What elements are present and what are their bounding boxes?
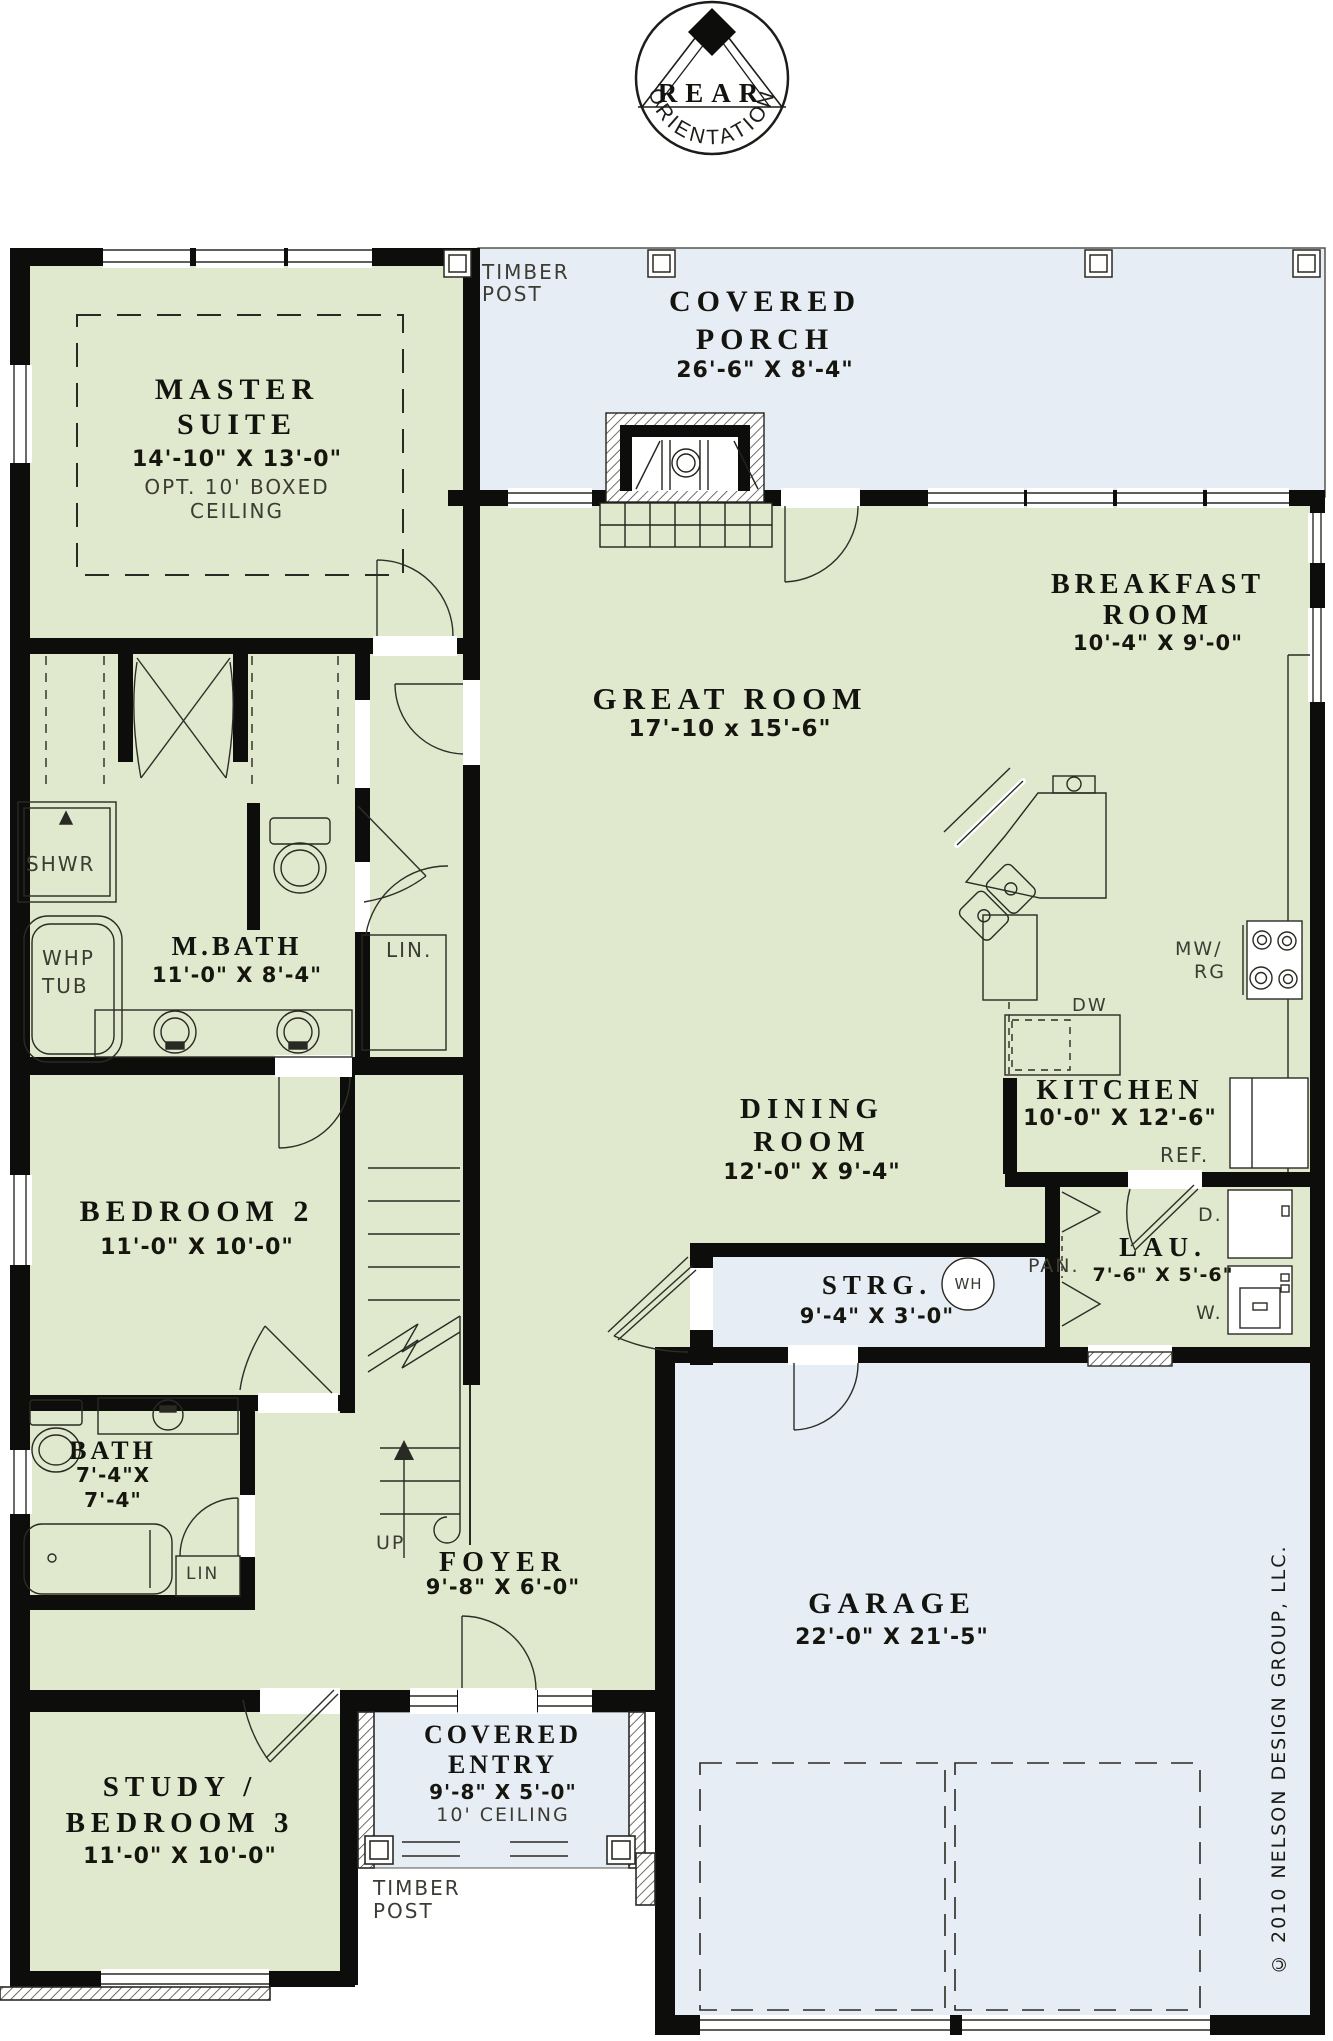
washer-label: W.: [1196, 1304, 1223, 1323]
timber-post-label-top-2: POST: [482, 284, 543, 304]
linen-bath-label: LIN: [186, 1566, 219, 1583]
room-dims-kitchen: 10'-0" X 12'-6": [970, 1108, 1270, 1130]
room-dims-covered-entry: 9'-8" X 5'-0": [353, 1782, 653, 1802]
water-heater-label: WH: [950, 1277, 987, 1292]
room-dims-garage: 22'-0" X 21'-5": [742, 1627, 1042, 1649]
shower-label: SHWR: [26, 854, 95, 874]
room-label-breakfast: BREAKFAST: [1008, 571, 1308, 599]
room-label-covered-porch-2: PORCH: [615, 325, 915, 355]
room-label-dining: DINING: [662, 1095, 962, 1124]
room-label-garage: GARAGE: [742, 1589, 1042, 1619]
room-label-bath: BATH: [23, 1438, 203, 1464]
room-dims-dining: 12'-0" X 9'-4": [662, 1162, 962, 1184]
master-ceiling-note-1: OPT. 10' BOXED: [87, 477, 387, 497]
timber-post-label-bottom-1: TIMBER: [373, 1878, 461, 1898]
room-label-great-room: GREAT ROOM: [580, 683, 880, 714]
room-dims-mbath: 11'-0" X 8'-4": [107, 965, 367, 986]
room-label-dining-2: ROOM: [662, 1128, 962, 1157]
room-dims-breakfast: 10'-4" X 9'-0": [1008, 633, 1308, 654]
microwave-range-label-2: RG: [1194, 963, 1226, 982]
room-dims-master-suite: 14'-10" X 13'-0": [87, 449, 387, 471]
room-label-study: STUDY /: [30, 1773, 330, 1802]
linen-mbath-label: LIN.: [386, 940, 432, 960]
room-dims-laundry: 7'-6" X 5'-6": [1063, 1266, 1263, 1285]
entry-ceiling-note: 10' CEILING: [353, 1806, 653, 1825]
room-dims-great-room: 17'-10 x 15'-6": [580, 718, 880, 741]
room-label-bedroom2: BEDROOM 2: [47, 1197, 347, 1227]
fireplace: [600, 413, 772, 547]
room-label-laundry: LAU.: [1063, 1234, 1263, 1261]
room-label-master-suite: MASTER: [87, 375, 387, 405]
refrigerator-label: REF.: [1160, 1145, 1209, 1165]
room-label-master-suite-2: SUITE: [87, 410, 387, 440]
room-label-covered-entry: COVERED: [353, 1722, 653, 1748]
whirlpool-label-1: WHP: [42, 948, 95, 968]
room-dims-foyer: 9'-8" X 6'-0": [353, 1577, 653, 1598]
dishwasher-label: DW: [1072, 997, 1108, 1015]
whirlpool-label-2: TUB: [42, 976, 89, 996]
pantry-label: PAN.: [1028, 1257, 1080, 1276]
room-dims-bath-2: 7'-4": [23, 1490, 203, 1510]
room-dims-covered-porch: 26'-6" X 8'-4": [615, 360, 915, 382]
room-label-mbath: M.BATH: [107, 933, 367, 960]
timber-post-label-top-1: TIMBER: [482, 262, 570, 282]
room-label-covered-porch: COVERED: [615, 287, 915, 317]
room-label-covered-entry-2: ENTRY: [353, 1752, 653, 1778]
timber-post-label-bottom-2: POST: [373, 1901, 434, 1921]
room-label-breakfast-2: ROOM: [1008, 602, 1308, 630]
dryer-label: D.: [1198, 1206, 1223, 1225]
microwave-range-label-1: MW/: [1175, 940, 1223, 959]
room-label-study-2: BEDROOM 3: [30, 1809, 330, 1838]
copyright-text: © 2010 NELSON DESIGN GROUP, LLC.: [1268, 1375, 1290, 1975]
room-dims-bedroom2: 11'-0" X 10'-0": [47, 1237, 347, 1259]
room-dims-study: 11'-0" X 10'-0": [30, 1846, 330, 1868]
compass-title: REAR: [612, 80, 812, 107]
room-dims-bath-1: 7'-4"X: [23, 1465, 203, 1485]
master-ceiling-note-2: CEILING: [87, 501, 387, 521]
floor-plan-page: ORIENTATION: [0, 0, 1333, 2041]
room-dims-storage: 9'-4" X 3'-0": [727, 1306, 1027, 1327]
stairs-up-label: UP: [376, 1534, 405, 1553]
room-label-kitchen: KITCHEN: [970, 1077, 1270, 1105]
